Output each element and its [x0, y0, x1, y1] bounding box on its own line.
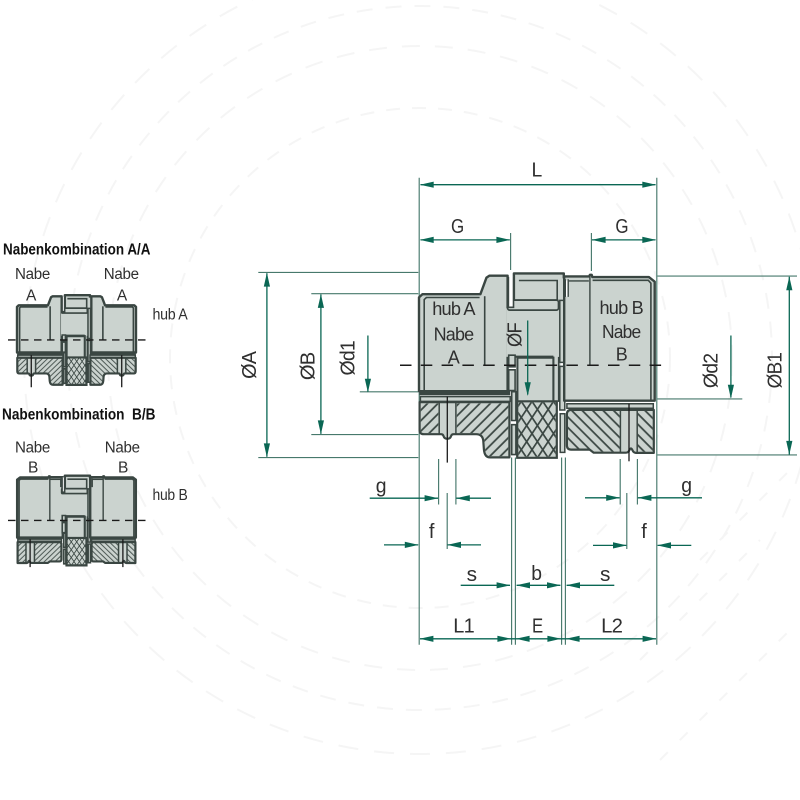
svg-text:A: A	[26, 287, 37, 304]
svg-text:f: f	[429, 521, 435, 543]
svg-text:B: B	[616, 344, 628, 364]
svg-text:G: G	[615, 216, 628, 238]
svg-text:Nabe: Nabe	[602, 322, 641, 342]
svg-text:ØB1: ØB1	[765, 352, 787, 388]
svg-text:f: f	[641, 521, 647, 543]
svg-text:Nabe: Nabe	[434, 325, 475, 345]
svg-text:hub B: hub B	[153, 487, 188, 504]
svg-text:Nabenkombination A/A: Nabenkombination A/A	[3, 242, 151, 259]
svg-text:L: L	[532, 160, 543, 182]
svg-text:ØF: ØF	[505, 322, 527, 347]
svg-text:hub A: hub A	[432, 299, 475, 319]
svg-text:g: g	[376, 476, 386, 498]
svg-text:g: g	[681, 475, 691, 497]
svg-text:B: B	[118, 460, 128, 477]
svg-text:ØA: ØA	[239, 350, 261, 378]
svg-text:E: E	[532, 615, 543, 637]
svg-text:b: b	[531, 563, 542, 585]
svg-text:Nabenkombination B/B: Nabenkombination B/B	[2, 406, 156, 423]
svg-text:Nabe: Nabe	[105, 440, 140, 457]
svg-text:Nabe: Nabe	[15, 440, 50, 457]
svg-text:L1: L1	[453, 615, 474, 637]
svg-text:s: s	[467, 564, 477, 586]
svg-text:L2: L2	[601, 615, 623, 637]
svg-text:hub A: hub A	[153, 307, 189, 324]
svg-text:B: B	[28, 460, 38, 477]
svg-text:hub B: hub B	[600, 298, 644, 318]
svg-text:ØB: ØB	[298, 352, 320, 380]
svg-text:Nabe: Nabe	[104, 266, 139, 283]
svg-text:s: s	[600, 564, 610, 586]
svg-text:A: A	[117, 287, 128, 304]
svg-text:A: A	[448, 348, 460, 368]
svg-text:G: G	[451, 216, 464, 238]
svg-text:Ød2: Ød2	[701, 353, 723, 388]
svg-text:Ød1: Ød1	[338, 340, 360, 375]
svg-text:Nabe: Nabe	[15, 266, 50, 283]
